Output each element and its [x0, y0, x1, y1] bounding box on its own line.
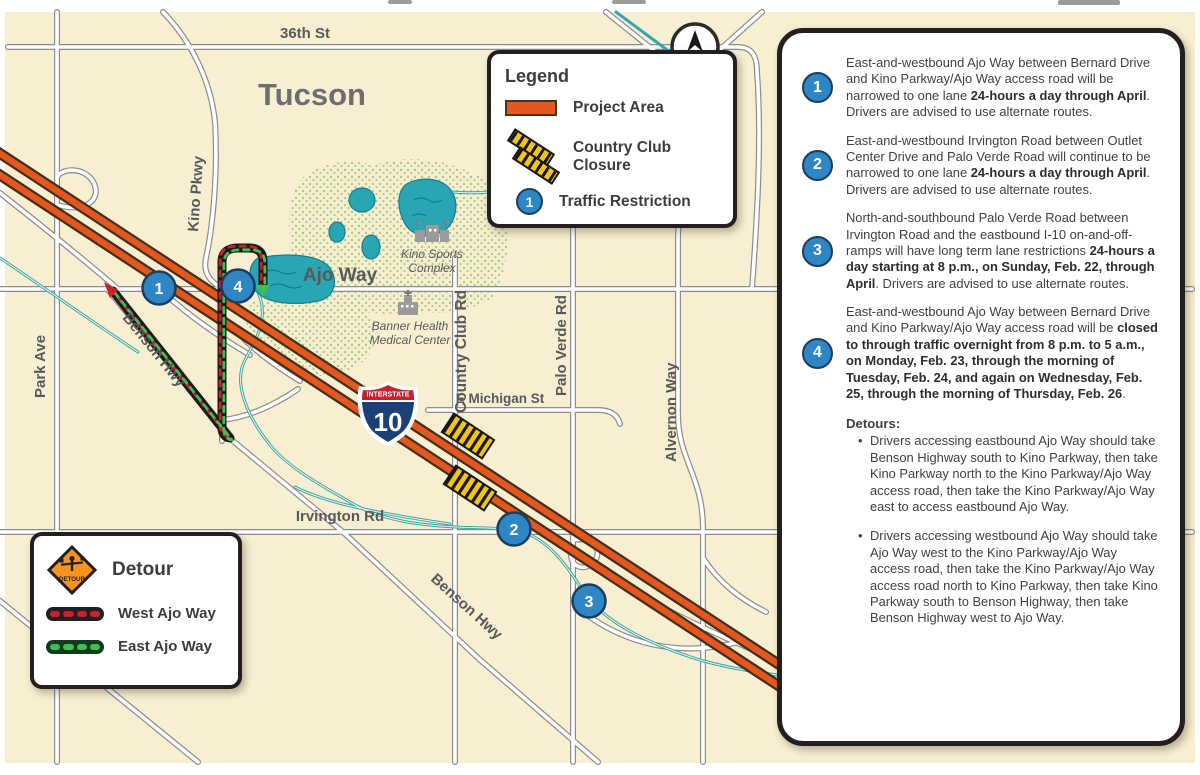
kino-sports-label-line1: Kino Sports — [401, 247, 463, 261]
svg-text:4: 4 — [234, 279, 243, 296]
restriction-number-badge: 3 — [802, 236, 833, 267]
svg-text:1: 1 — [155, 281, 164, 298]
restriction-item-2: 2 East-and-westbound Irvington Road betw… — [794, 133, 1160, 199]
street-label-alvernon: Alvernon Way — [663, 362, 680, 462]
detour-item-label: East Ajo Way — [118, 638, 212, 655]
kino-sports-label-line2: Complex — [408, 261, 456, 275]
detour-legend-box: DETOUR Detour West Ajo Way East Ajo Way — [30, 532, 242, 689]
shield-interstate-text: INTERSTATE — [367, 392, 410, 399]
street-label-ajo-way: Ajo Way — [303, 265, 378, 286]
legend-item-label: Traffic Restriction — [559, 193, 691, 211]
restriction-item-1: 1 East-and-westbound Ajo Way between Ber… — [794, 55, 1160, 121]
svg-text:2: 2 — [510, 522, 519, 539]
legend-item-traffic-restriction: 1 Traffic Restriction — [505, 188, 719, 215]
east-ajo-dash-swatch — [46, 640, 104, 654]
banner-label-line1: Banner Health — [372, 319, 449, 333]
restriction-item-3: 3 North-and-southbound Palo Verde Road b… — [794, 210, 1160, 292]
detour-title: Detour — [112, 559, 173, 581]
detour-bullet: Drivers accessing eastbound Ajo Way shou… — [860, 433, 1160, 515]
street-label-palo-verde: Palo Verde Rd — [553, 295, 570, 396]
west-ajo-dash-swatch — [46, 607, 104, 621]
legend-item-label: Project Area — [573, 99, 664, 117]
banner-label-line2: Medical Center — [370, 333, 452, 347]
street-label-michigan: E Michigan St — [456, 391, 545, 406]
street-label-irvington: Irvington Rd — [296, 508, 384, 525]
project-area-swatch — [505, 100, 557, 116]
street-label-36th: 36th St — [280, 25, 330, 42]
closure-hatch-swatch — [505, 132, 557, 182]
legend-item-country-club-closure: Country Club Closure — [505, 132, 719, 182]
detours-section: Detours: Drivers accessing eastbound Ajo… — [846, 416, 1160, 626]
detour-item-label: West Ajo Way — [118, 605, 216, 622]
marker-3: 3 — [573, 585, 606, 618]
detours-list: Drivers accessing eastbound Ajo Way shou… — [846, 433, 1160, 626]
detour-item-east: East Ajo Way — [46, 638, 226, 655]
shield-number-text: 10 — [374, 407, 403, 437]
legend-item-project-area: Project Area — [505, 99, 719, 117]
restriction-item-4: 4 East-and-westbound Ajo Way between Ber… — [794, 304, 1160, 402]
restriction-number-badge: 4 — [802, 338, 833, 369]
detour-item-west: West Ajo Way — [46, 605, 226, 622]
street-label-park-ave: Park Ave — [32, 335, 49, 398]
detour-sign-text: DETOUR — [59, 576, 86, 583]
svg-text:3: 3 — [585, 594, 594, 611]
legend-title: Legend — [505, 66, 719, 87]
detour-sign-row: DETOUR Detour — [46, 544, 226, 596]
restriction-text: North-and-southbound Palo Verde Road bet… — [846, 210, 1160, 292]
detour-bullet: Drivers accessing westbound Ajo Way shou… — [860, 528, 1160, 626]
restriction-number-badge: 1 — [802, 72, 833, 103]
legend-box: Legend Project Area Country Club Closure… — [487, 50, 737, 228]
marker-2: 2 — [498, 513, 531, 546]
restriction-text: East-and-westbound Ajo Way between Berna… — [846, 304, 1160, 402]
legend-item-label: Country Club Closure — [573, 139, 719, 175]
marker-4: 4 — [222, 270, 255, 303]
restriction-number-badge: 2 — [802, 150, 833, 181]
page: { "map": { "city": "Tucson", "labels": {… — [0, 0, 1200, 775]
city-label: Tucson — [258, 77, 366, 112]
traffic-restriction-badge: 1 — [516, 188, 543, 215]
restrictions-panel: 1 East-and-westbound Ajo Way between Ber… — [777, 28, 1185, 746]
marker-1: 1 — [143, 272, 176, 305]
restriction-text: East-and-westbound Irvington Road betwee… — [846, 133, 1160, 199]
restriction-text: East-and-westbound Ajo Way between Berna… — [846, 55, 1160, 121]
detour-sign-icon: DETOUR — [46, 544, 98, 596]
detours-heading: Detours: — [846, 416, 1160, 431]
